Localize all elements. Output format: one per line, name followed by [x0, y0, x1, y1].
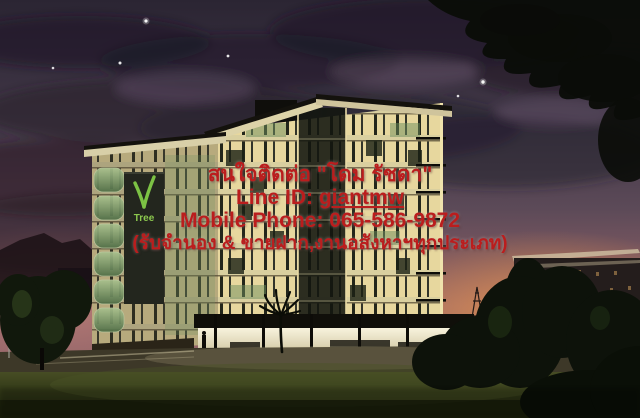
glass-core [297, 108, 347, 336]
bottom-vignette [0, 388, 640, 418]
scene-art: Tree [0, 0, 640, 418]
tree-logo-text: Tree [134, 213, 155, 224]
condo-night-photo: Tree [0, 0, 640, 418]
tree-condo-sign: Tree [124, 172, 164, 304]
